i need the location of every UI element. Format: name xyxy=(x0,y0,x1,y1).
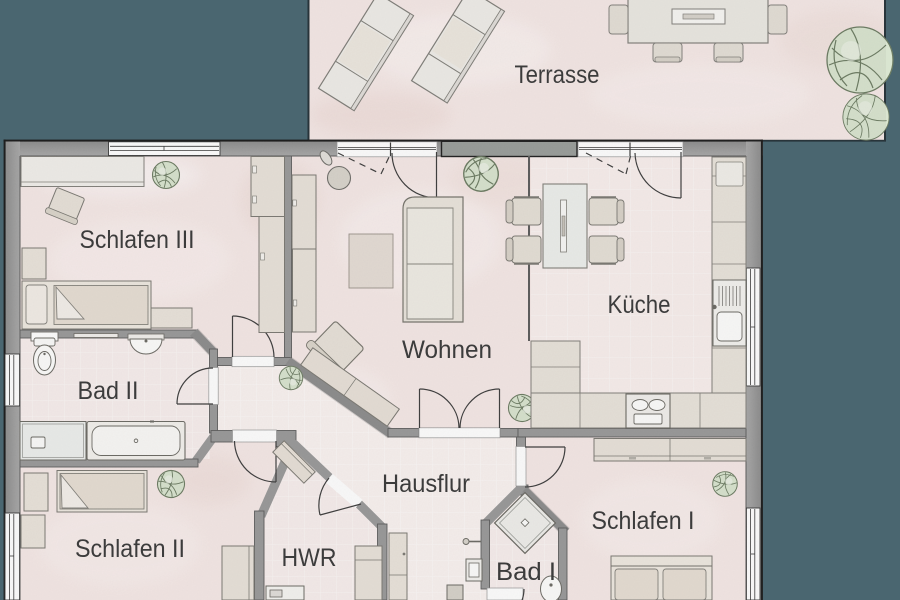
svg-text:Schlafen II: Schlafen II xyxy=(75,535,185,563)
svg-text:Küche: Küche xyxy=(608,291,671,319)
svg-text:Terrasse: Terrasse xyxy=(515,61,600,89)
svg-text:HWR: HWR xyxy=(282,544,337,572)
svg-text:Hausflur: Hausflur xyxy=(382,470,470,498)
svg-text:Bad II: Bad II xyxy=(78,377,139,405)
svg-text:Schlafen I: Schlafen I xyxy=(592,507,695,535)
svg-text:Schlafen III: Schlafen III xyxy=(80,226,195,254)
svg-text:Bad I: Bad I xyxy=(496,558,556,586)
svg-text:Wohnen: Wohnen xyxy=(402,336,492,364)
